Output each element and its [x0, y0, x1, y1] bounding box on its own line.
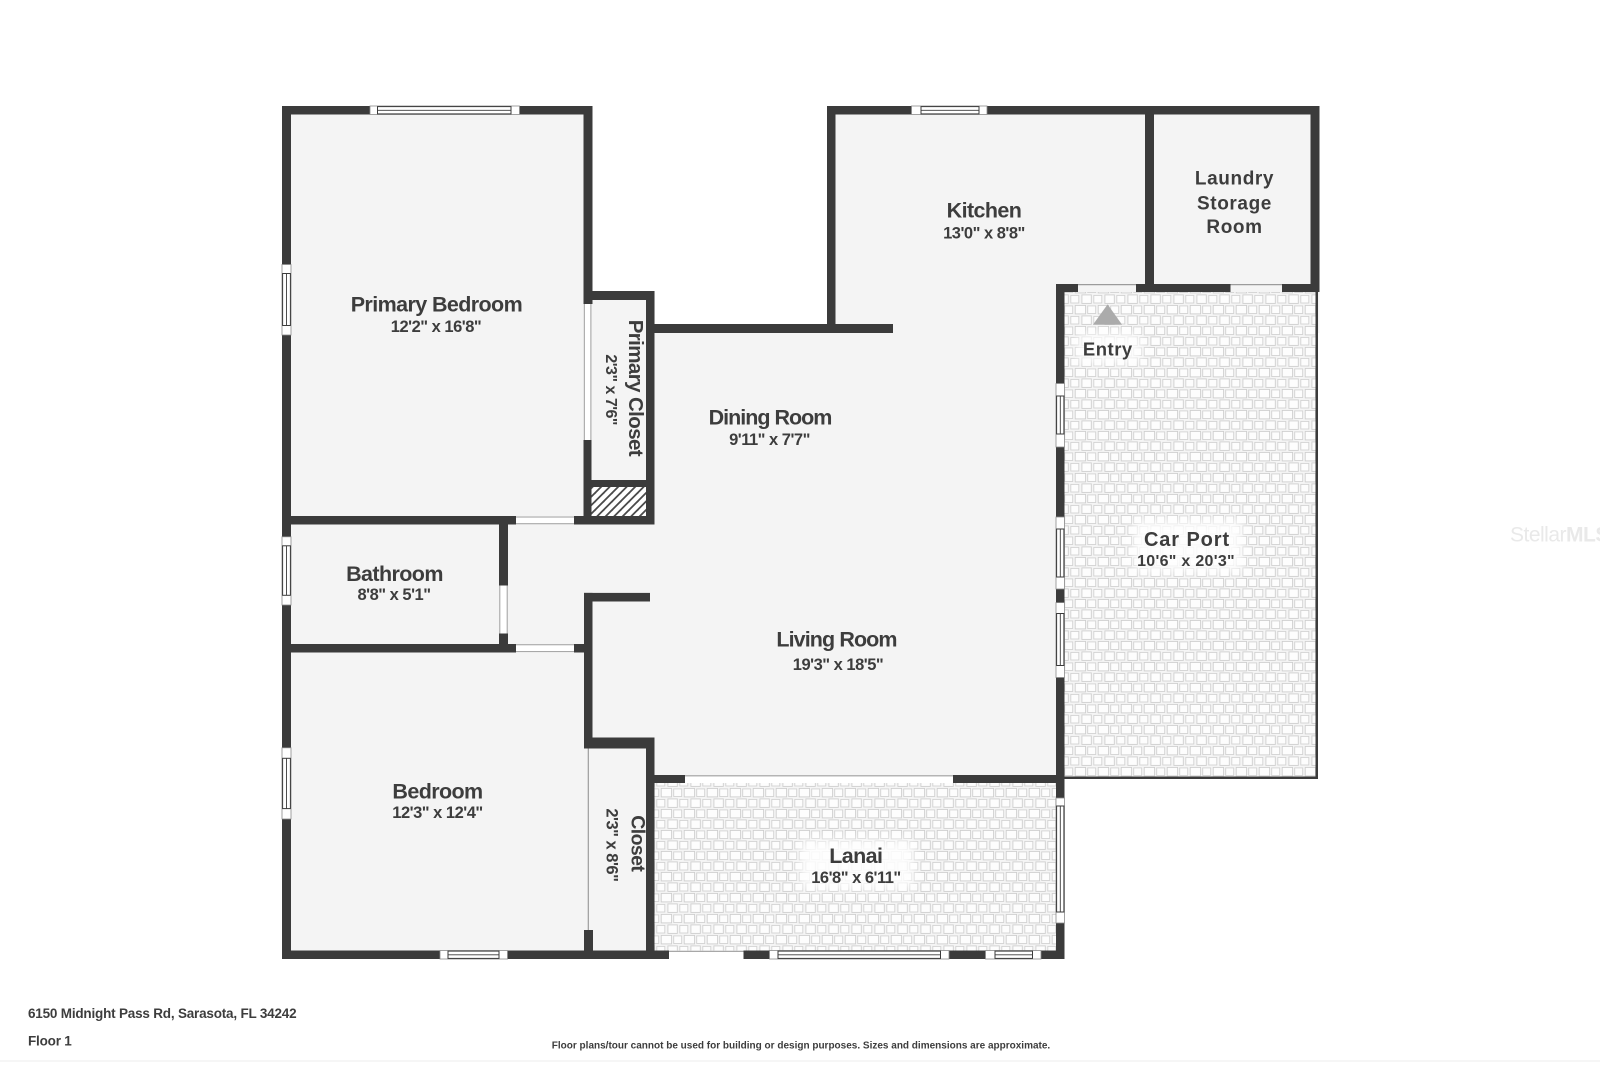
- svg-text:Entry: Entry: [1083, 339, 1133, 360]
- svg-text:16'8" x 6'11": 16'8" x 6'11": [811, 869, 901, 887]
- svg-text:Floor plans/tour cannot be use: Floor plans/tour cannot be used for buil…: [552, 1041, 1051, 1052]
- svg-text:Floor 1: Floor 1: [28, 1034, 72, 1049]
- svg-text:Storage: Storage: [1197, 194, 1272, 215]
- svg-text:Closet: Closet: [627, 815, 649, 872]
- svg-text:Primary Bedroom: Primary Bedroom: [351, 292, 522, 316]
- svg-text:2'3" x 8'6": 2'3" x 8'6": [603, 808, 621, 881]
- svg-text:13'0" x 8'8": 13'0" x 8'8": [943, 225, 1025, 243]
- svg-text:2'3" x 7'6": 2'3" x 7'6": [602, 354, 619, 425]
- svg-text:8'8" x 5'1": 8'8" x 5'1": [357, 586, 430, 604]
- svg-text:Car Port: Car Port: [1144, 529, 1230, 551]
- svg-text:Lanai: Lanai: [829, 844, 882, 868]
- svg-text:19'3" x 18'5": 19'3" x 18'5": [793, 656, 883, 674]
- svg-text:12'3" x 12'4": 12'3" x 12'4": [392, 804, 482, 822]
- svg-text:6150 Midnight Pass Rd, Sarasot: 6150 Midnight Pass Rd, Sarasota, FL 3424…: [28, 1006, 296, 1021]
- svg-text:Room: Room: [1206, 217, 1262, 238]
- svg-text:Kitchen: Kitchen: [947, 198, 1022, 222]
- svg-text:Bathroom: Bathroom: [346, 562, 443, 586]
- svg-text:Dining Room: Dining Room: [709, 405, 832, 429]
- svg-text:Laundry: Laundry: [1195, 169, 1274, 190]
- svg-text:10'6" x 20'3": 10'6" x 20'3": [1137, 553, 1235, 570]
- svg-text:9'11" x 7'7": 9'11" x 7'7": [729, 431, 810, 449]
- svg-text:Primary Closet: Primary Closet: [624, 320, 647, 457]
- svg-text:Living Room: Living Room: [776, 628, 896, 652]
- svg-text:Bedroom: Bedroom: [392, 780, 482, 804]
- svg-text:12'2" x 16'8": 12'2" x 16'8": [391, 318, 481, 336]
- svg-text:StellarMLS: StellarMLS: [1510, 524, 1600, 547]
